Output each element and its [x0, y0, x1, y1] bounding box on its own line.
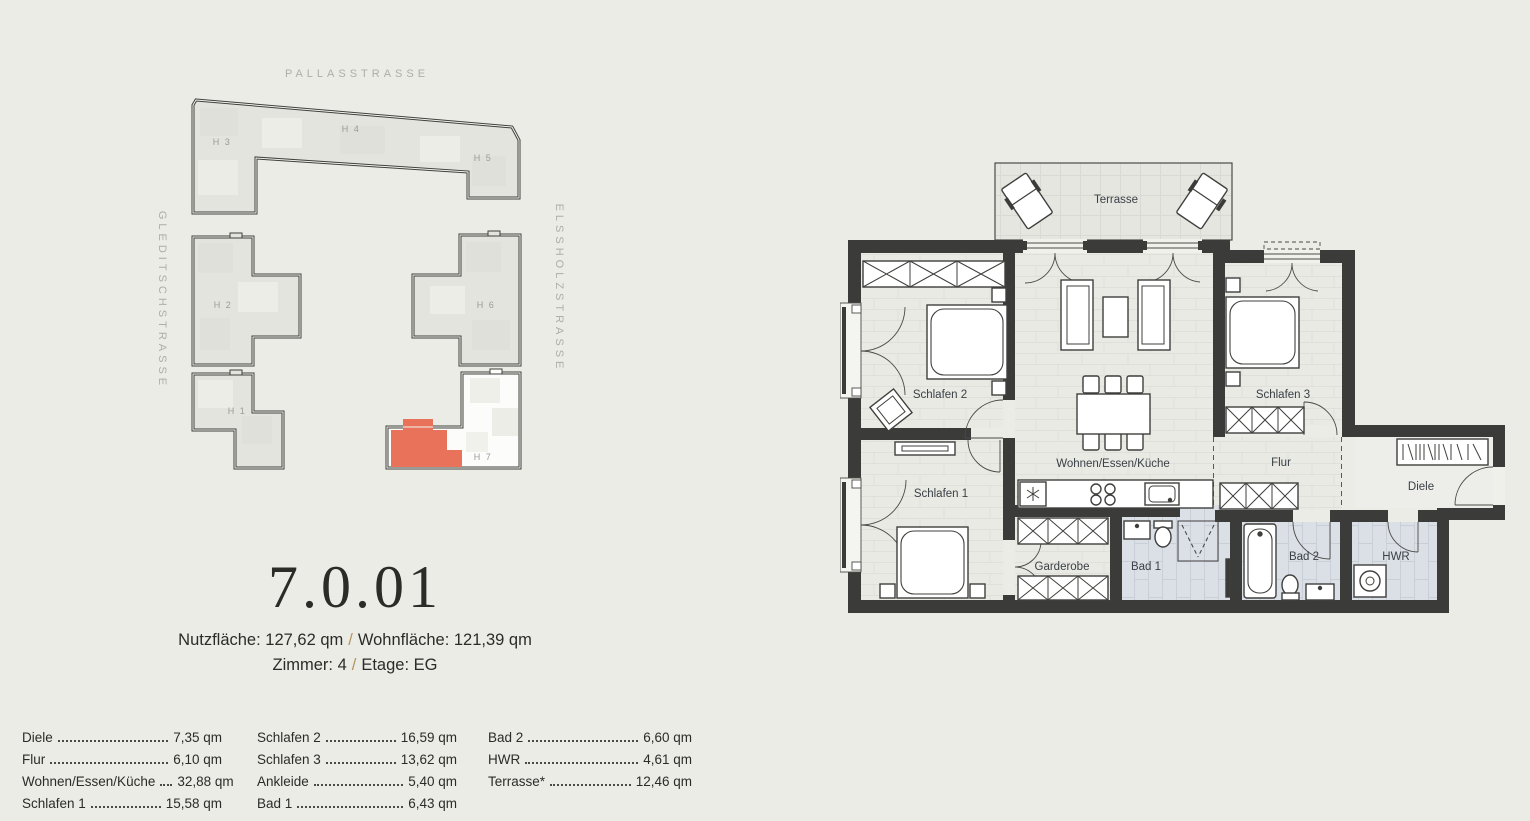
row-value: 7,35 qm	[173, 730, 222, 745]
wardrobe	[1220, 483, 1298, 509]
building-top-bar-h3-h4-h5	[193, 100, 519, 213]
table-row: Diele7,35 qm	[22, 730, 222, 752]
row-label: Bad 2	[488, 730, 523, 745]
row-label: Flur	[22, 752, 45, 767]
row-value: 13,62 qm	[401, 752, 457, 767]
dot-leader	[528, 740, 638, 742]
radiator	[1226, 559, 1230, 597]
building-label-h3: H 3	[213, 137, 232, 147]
wardrobe	[1018, 576, 1108, 600]
unit-number: 7.0.01	[125, 556, 585, 619]
unit-header: 7.0.01 Nutzfläche: 127,62 qm/Wohnfläche:…	[125, 556, 585, 675]
row-value: 6,43 qm	[408, 796, 457, 811]
dot-leader	[160, 784, 172, 786]
nightstand	[880, 584, 895, 598]
dining-table	[1077, 394, 1150, 434]
row-label: Schlafen 2	[257, 730, 321, 745]
street-label-elssholzstrasse: ELSSHOLZSTRASSE	[553, 204, 565, 373]
table-row: Schlafen 216,59 qm	[257, 730, 457, 752]
room-label-bad2: Bad 2	[1289, 551, 1319, 563]
coffee-table	[1103, 297, 1128, 337]
row-label: Schlafen 3	[257, 752, 321, 767]
wohnflaeche-text: Wohnfläche: 121,39 qm	[358, 631, 532, 649]
unit-areas-line: Nutzfläche: 127,62 qm/Wohnfläche: 121,39…	[125, 631, 585, 650]
dot-leader	[314, 784, 403, 786]
dot-leader	[550, 784, 631, 786]
dot-leader	[326, 762, 396, 764]
room-label-wohnen: Wohnen/Essen/Küche	[1056, 458, 1170, 470]
nightstand	[992, 381, 1006, 395]
wardrobe	[1226, 407, 1304, 433]
apartment-floor-plan: Terrasse Schlafen 2 Wohnen/Essen/Küche S…	[840, 155, 1515, 630]
table-row: Schlafen 313,62 qm	[257, 752, 457, 774]
kitchen-counter	[1018, 480, 1213, 508]
building-h2	[193, 233, 300, 365]
row-label: Ankleide	[257, 774, 309, 789]
area-table-column-2: Schlafen 216,59 qm Schlafen 313,62 qm An…	[257, 730, 457, 818]
sofa	[1138, 280, 1170, 350]
room-label-garderobe: Garderobe	[1035, 561, 1090, 573]
street-label-gleditschstrasse: GLEDITSCHSTRASSE	[156, 211, 168, 389]
sofa	[1061, 280, 1093, 350]
separator: /	[347, 656, 362, 674]
room-label-terrasse: Terrasse	[1094, 194, 1138, 206]
dot-leader	[50, 762, 168, 764]
bed	[1226, 297, 1299, 368]
site-plan: PALLASSTRASSE GLEDITSCHSTRASSE ELSSHOLZS…	[140, 60, 580, 480]
row-value: 12,46 qm	[636, 774, 692, 789]
row-value: 16,59 qm	[401, 730, 457, 745]
nightstand	[1226, 372, 1240, 386]
street-label-pallasstrasse: PALLASSTRASSE	[285, 68, 429, 80]
washing-machine	[1354, 565, 1386, 597]
dot-leader	[58, 740, 168, 742]
table-row: Schlafen 115,58 qm	[22, 796, 222, 818]
area-table-column-3: Bad 26,60 qm HWR4,61 qm Terrasse*12,46 q…	[488, 730, 692, 818]
room-label-hwr: HWR	[1382, 551, 1409, 563]
building-label-h7: H 7	[474, 452, 493, 462]
wardrobe	[1018, 518, 1108, 544]
dot-leader	[326, 740, 396, 742]
bathtub	[1244, 524, 1276, 598]
etage-text: Etage: EG	[361, 656, 437, 674]
building-h1	[193, 370, 283, 468]
building-label-h4: H 4	[342, 124, 361, 134]
building-label-h5: H 5	[474, 153, 493, 163]
washbasin	[1124, 521, 1150, 539]
building-h6	[413, 231, 520, 365]
sink-icon	[1145, 483, 1179, 505]
table-row: Bad 16,43 qm	[257, 796, 457, 818]
table-row: Wohnen/Essen/Küche32,88 qm	[22, 774, 222, 796]
coat-rack	[1397, 439, 1488, 465]
room-label-schlafen1: Schlafen 1	[914, 488, 968, 500]
dot-leader	[91, 806, 161, 808]
area-table-column-1: Diele7,35 qm Flur6,10 qm Wohnen/Essen/Kü…	[22, 730, 222, 818]
wardrobe	[863, 261, 1005, 287]
dot-leader	[525, 762, 638, 764]
room-label-flur: Flur	[1271, 457, 1291, 469]
dot-leader	[297, 806, 403, 808]
nightstand	[992, 288, 1006, 302]
building-label-h2: H 2	[214, 300, 233, 310]
row-label: Diele	[22, 730, 53, 745]
row-value: 5,40 qm	[408, 774, 457, 789]
table-row: Bad 26,60 qm	[488, 730, 692, 752]
row-label: HWR	[488, 752, 520, 767]
room-label-schlafen2: Schlafen 2	[913, 389, 967, 401]
row-value: 4,61 qm	[643, 752, 692, 767]
table-row: HWR4,61 qm	[488, 752, 692, 774]
washbasin	[1306, 584, 1334, 600]
building-label-h6: H 6	[477, 300, 496, 310]
bed	[927, 305, 1007, 379]
table-row: Terrasse*12,46 qm	[488, 774, 692, 796]
nutzflaeche-text: Nutzfläche: 127,62 qm	[178, 631, 343, 649]
room-label-diele: Diele	[1408, 481, 1434, 493]
toilet	[1154, 521, 1172, 547]
bed	[897, 527, 968, 598]
floorplan-sheet: PALLASSTRASSE GLEDITSCHSTRASSE ELSSHOLZS…	[0, 0, 1530, 821]
room-label-bad1: Bad 1	[1131, 561, 1161, 573]
row-label: Bad 1	[257, 796, 292, 811]
row-value: 15,58 qm	[166, 796, 222, 811]
row-label: Schlafen 1	[22, 796, 86, 811]
toilet	[1282, 575, 1299, 600]
room-label-schlafen3: Schlafen 3	[1256, 389, 1310, 401]
building-label-h1: H 1	[228, 406, 247, 416]
row-value: 6,60 qm	[643, 730, 692, 745]
row-label: Wohnen/Essen/Küche	[22, 774, 155, 789]
room-area-table: Diele7,35 qm Flur6,10 qm Wohnen/Essen/Kü…	[22, 730, 692, 818]
row-label: Terrasse*	[488, 774, 545, 789]
row-value: 6,10 qm	[173, 752, 222, 767]
table-row: Ankleide5,40 qm	[257, 774, 457, 796]
sideboard	[895, 442, 955, 455]
row-value: 32,88 qm	[177, 774, 233, 789]
nightstand	[970, 584, 985, 598]
nightstand	[1226, 278, 1240, 292]
separator: /	[343, 631, 358, 649]
building-h7	[387, 369, 520, 468]
zimmer-text: Zimmer: 4	[273, 656, 347, 674]
table-row: Flur6,10 qm	[22, 752, 222, 774]
unit-rooms-line: Zimmer: 4/Etage: EG	[125, 656, 585, 675]
